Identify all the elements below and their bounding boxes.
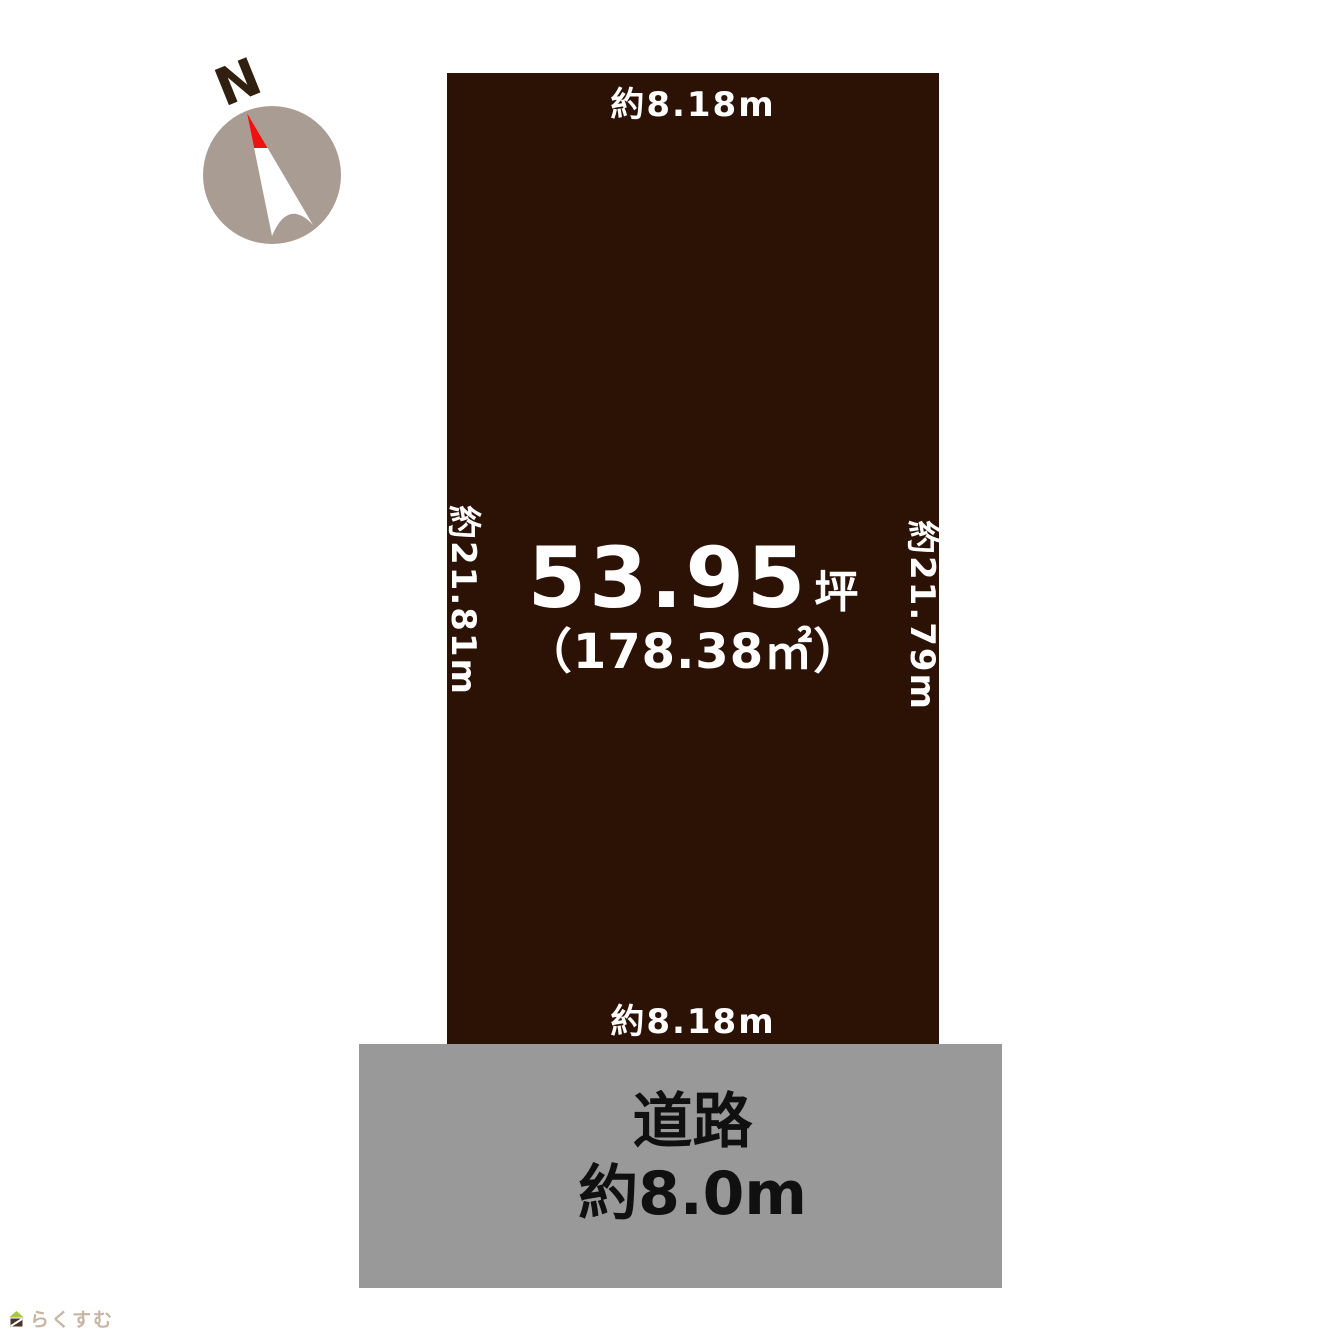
area-label: 53.95坪 （178.38㎡）	[447, 531, 939, 680]
area-tsubo-value: 53.95	[528, 529, 809, 627]
area-sqm: （178.38㎡）	[447, 625, 939, 680]
road-area: 道路 約8.0m	[359, 1044, 1002, 1288]
canvas: { "compass": { "north_label": "N", "circ…	[0, 0, 1333, 1333]
site-logo: らくすむ	[8, 1305, 114, 1332]
dimension-top: 約8.18m	[447, 77, 939, 126]
area-tsubo-line: 53.95坪	[447, 531, 939, 625]
house-icon	[8, 1310, 25, 1327]
road-width: 約8.0m	[371, 1158, 1014, 1230]
road-label: 道路 約8.0m	[371, 1086, 1014, 1230]
road-name: 道路	[371, 1086, 1014, 1158]
logo-text: らくすむ	[30, 1305, 114, 1332]
area-tsubo-unit: 坪	[814, 567, 858, 618]
compass: N	[190, 50, 350, 250]
compass-graphic: N	[190, 50, 350, 250]
dimension-bottom: 約8.18m	[447, 994, 939, 1043]
land-plot: 約8.18m 約21.81m 約21.79m 53.95坪 （178.38㎡） …	[447, 73, 939, 1044]
